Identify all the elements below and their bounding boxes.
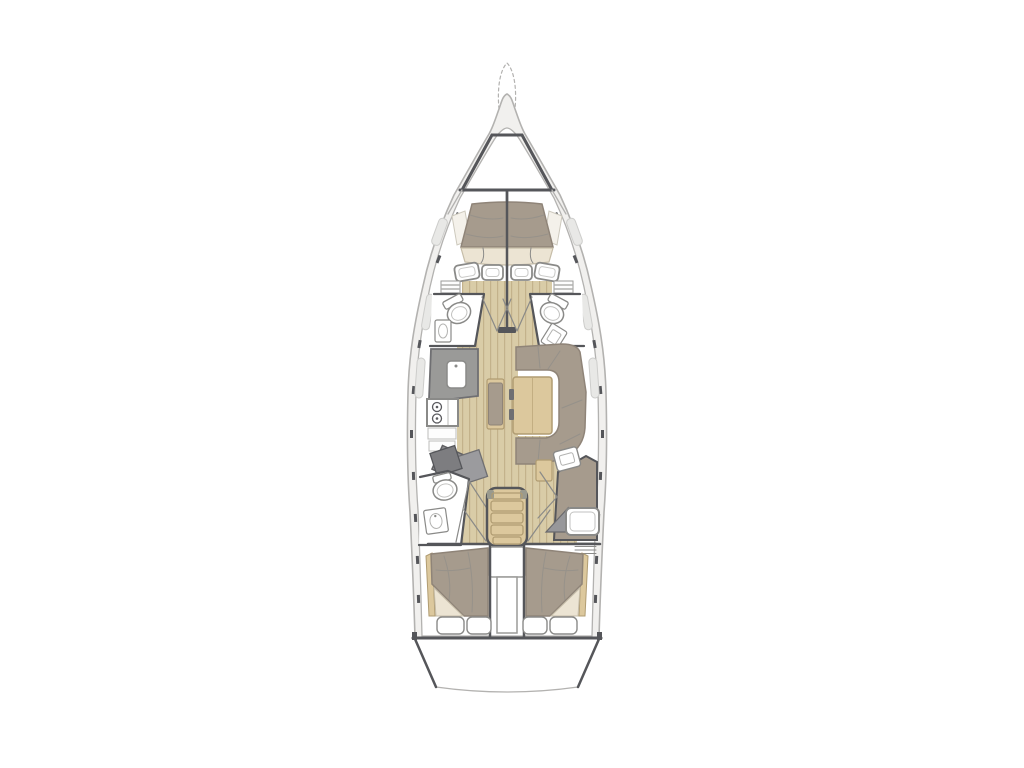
transom bbox=[412, 632, 602, 692]
pillows bbox=[437, 617, 491, 634]
washbasin bbox=[423, 508, 448, 535]
mast-step bbox=[498, 327, 516, 333]
dining-table bbox=[509, 377, 552, 434]
galley-sink bbox=[447, 361, 466, 388]
pillows bbox=[523, 617, 577, 634]
shower-tray bbox=[566, 508, 599, 535]
forward-head-starboard bbox=[530, 292, 584, 351]
companionway-steps bbox=[487, 488, 527, 546]
yacht-floor-plan bbox=[0, 0, 1024, 768]
forward-head-port bbox=[430, 292, 484, 347]
saloon-bench bbox=[487, 379, 504, 429]
stove bbox=[427, 399, 458, 426]
washbasin bbox=[435, 320, 451, 342]
boat-floor-plan-canvas bbox=[0, 0, 1024, 768]
